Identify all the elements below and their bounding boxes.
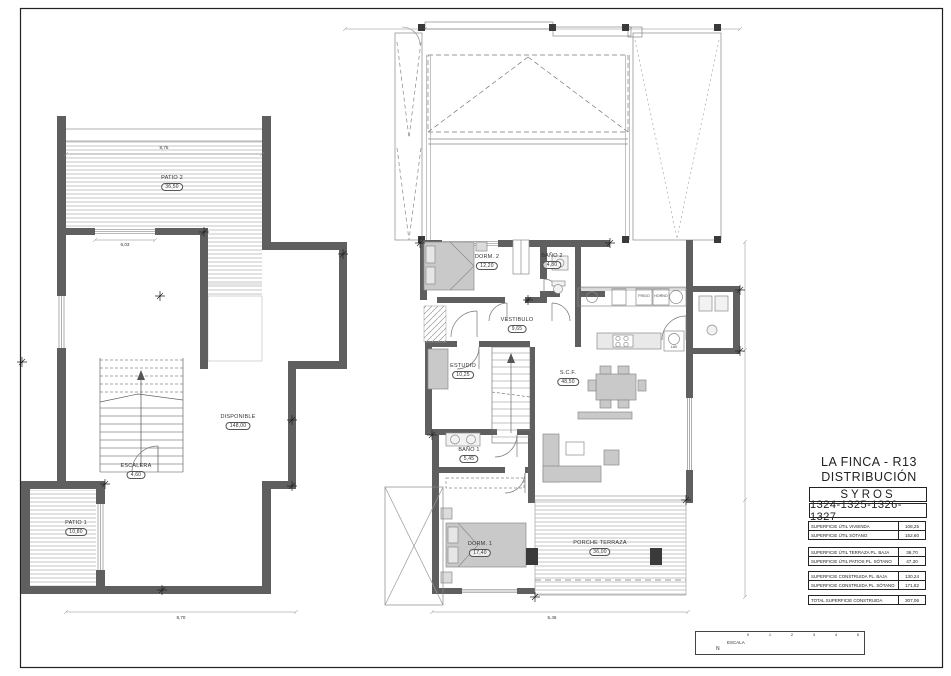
room-name: PATIO 2: [161, 175, 183, 182]
room-label-patio2: PATIO 2 36,50: [161, 175, 183, 191]
room-name: DORM. 1: [468, 541, 492, 548]
kitchen-fixtures: [578, 288, 686, 351]
oven-label: HORNO: [654, 294, 667, 298]
room-name: BAÑO 2: [541, 253, 562, 260]
room-area: 9,65: [508, 325, 527, 334]
scale-tick: 0: [747, 632, 749, 637]
sotano-stair-icon: [100, 358, 183, 472]
table-row: SUPERFICIE ÚTIL VIVIENDA 108,25: [808, 521, 926, 531]
table-row-value: 36,70: [898, 548, 925, 556]
laundry-label: LAV: [671, 345, 678, 349]
room-label-patio1: PATIO 1 10,80: [65, 520, 87, 536]
dim-sotano-total: 8,70: [177, 615, 186, 620]
scale-label: ESCALA: [727, 640, 745, 645]
table-row: SUPERFICIE ÚTIL TERRAZA PL. BAJA 36,70: [808, 547, 926, 557]
bathroom1-fixtures: [446, 433, 480, 446]
table-row-label: SUPERFICIE ÚTIL SÓTANO: [809, 531, 898, 539]
scale-tick: 1: [769, 632, 771, 637]
room-name: ESCALERA: [121, 463, 152, 470]
plan-baja: [343, 22, 747, 614]
room-name: PATIO 1: [65, 520, 87, 527]
room-label-porche: PORCHE TERRAZA 36,00: [573, 540, 626, 556]
dim-sotano-opening: 6,03: [121, 242, 130, 247]
dim-patio2-width: 8,75: [160, 145, 169, 150]
room-label-vestibulo: VESTIBULO 9,65: [501, 317, 534, 333]
plot-numbers-box: 1324-1325-1326-1327: [809, 503, 927, 518]
table-row-value: 307,06: [898, 596, 925, 604]
room-name: BAÑO 1: [458, 447, 479, 454]
sideboard-icon: [578, 412, 632, 419]
table-row-value: 47,30: [898, 557, 925, 565]
closet-dashed-icon: [446, 478, 524, 488]
sheet-border: [21, 9, 943, 668]
room-label-escalera: ESCALERA 4,60: [121, 463, 152, 479]
table-row-total: TOTAL SUPERFICIE CONSTRUIDA 307,06: [808, 595, 926, 605]
porch-column: [526, 548, 538, 565]
scale-north-box: [695, 631, 865, 655]
room-name: VESTIBULO: [501, 317, 534, 324]
room-label-dorm2: DORM. 2 12,20: [475, 254, 499, 270]
project-title: LA FINCA - R13: [795, 455, 943, 469]
room-label-disponible: DISPONIBLE 148,00: [220, 414, 255, 430]
fridge-label: FRIGO: [638, 294, 649, 298]
table-group-gap: [808, 540, 926, 547]
table-row-label: SUPERFICIE ÚTIL TERRAZA PL. BAJA: [809, 548, 898, 556]
room-area: 12,20: [476, 262, 498, 271]
table-row-value: 130,24: [898, 572, 925, 580]
table-row: SUPERFICIE CONSTRUIDA PL. BAJA 130,24: [808, 571, 926, 581]
table-row: SUPERFICIE ÚTIL SÓTANO 152,60: [808, 530, 926, 540]
room-area: 10,80: [65, 528, 87, 537]
scale-tick: 3: [813, 632, 815, 637]
table-row-label: SUPERFICIE CONSTRUIDA PL. SÓTANO: [809, 581, 898, 589]
table-row-label: SUPERFICIE ÚTIL PATIOS PL. SÓTANO: [809, 557, 898, 565]
room-name: DISPONIBLE: [220, 414, 255, 421]
table-row-value: 171,82: [898, 581, 925, 589]
entrance-steps: [424, 306, 446, 342]
room-area: 5,45: [460, 455, 479, 464]
room-name: ESTUDIO: [450, 363, 476, 370]
porch-column: [650, 548, 662, 565]
room-area: 4,80: [543, 261, 562, 270]
room-area: 17,40: [469, 549, 491, 558]
table-row-value: 152,60: [898, 531, 925, 539]
room-label-estudio: ESTUDIO 10,25: [450, 363, 476, 379]
area-table: SUPERFICIE ÚTIL VIVIENDA 108,25 SUPERFIC…: [808, 521, 926, 605]
baja-stair-icon: [492, 347, 530, 443]
room-label-salon: S.C.F. 48,50: [557, 370, 579, 386]
table-row-value: 108,25: [898, 522, 925, 530]
scale-tick: 4: [835, 632, 837, 637]
dim-baja-total: 5,45: [548, 615, 557, 620]
table-row-label: TOTAL SUPERFICIE CONSTRUIDA: [809, 596, 898, 604]
room-area: 4,60: [127, 471, 146, 480]
room-name: PORCHE TERRAZA: [573, 540, 626, 547]
room-area: 148,00: [226, 422, 251, 431]
scale-tick: 2: [791, 632, 793, 637]
north-label: N: [716, 646, 720, 652]
room-area: 10,25: [452, 371, 474, 380]
room-label-dorm1: DORM. 1 17,40: [468, 541, 492, 557]
room-name: DORM. 2: [475, 254, 499, 261]
drawing-title: DISTRIBUCIÓN: [795, 470, 943, 484]
utility-fixtures: [699, 296, 728, 335]
roof-plan: [395, 22, 721, 243]
room-area: 48,50: [557, 378, 579, 387]
room-name: S.C.F.: [557, 370, 579, 377]
roof-columns: [418, 24, 721, 243]
entrance-door-icon: [451, 311, 477, 337]
table-row: SUPERFICIE CONSTRUIDA PL. SÓTANO 171,82: [808, 580, 926, 590]
room-label-bano2: BAÑO 2 4,80: [541, 253, 562, 269]
table-row: SUPERFICIE ÚTIL PATIOS PL. SÓTANO 47,30: [808, 556, 926, 566]
table-row-label: SUPERFICIE CONSTRUIDA PL. BAJA: [809, 572, 898, 580]
room-label-bano1: BAÑO 1 5,45: [458, 447, 479, 463]
dining-table-icon: [588, 366, 646, 408]
table-row-label: SUPERFICIE ÚTIL VIVIENDA: [809, 522, 898, 530]
room-area: 36,50: [161, 183, 183, 192]
room-area: 36,00: [589, 548, 611, 557]
drawing-sheet: PATIO 2 36,50 DISPONIBLE 148,00 ESCALERA…: [0, 0, 951, 676]
scale-tick: 5: [857, 632, 859, 637]
